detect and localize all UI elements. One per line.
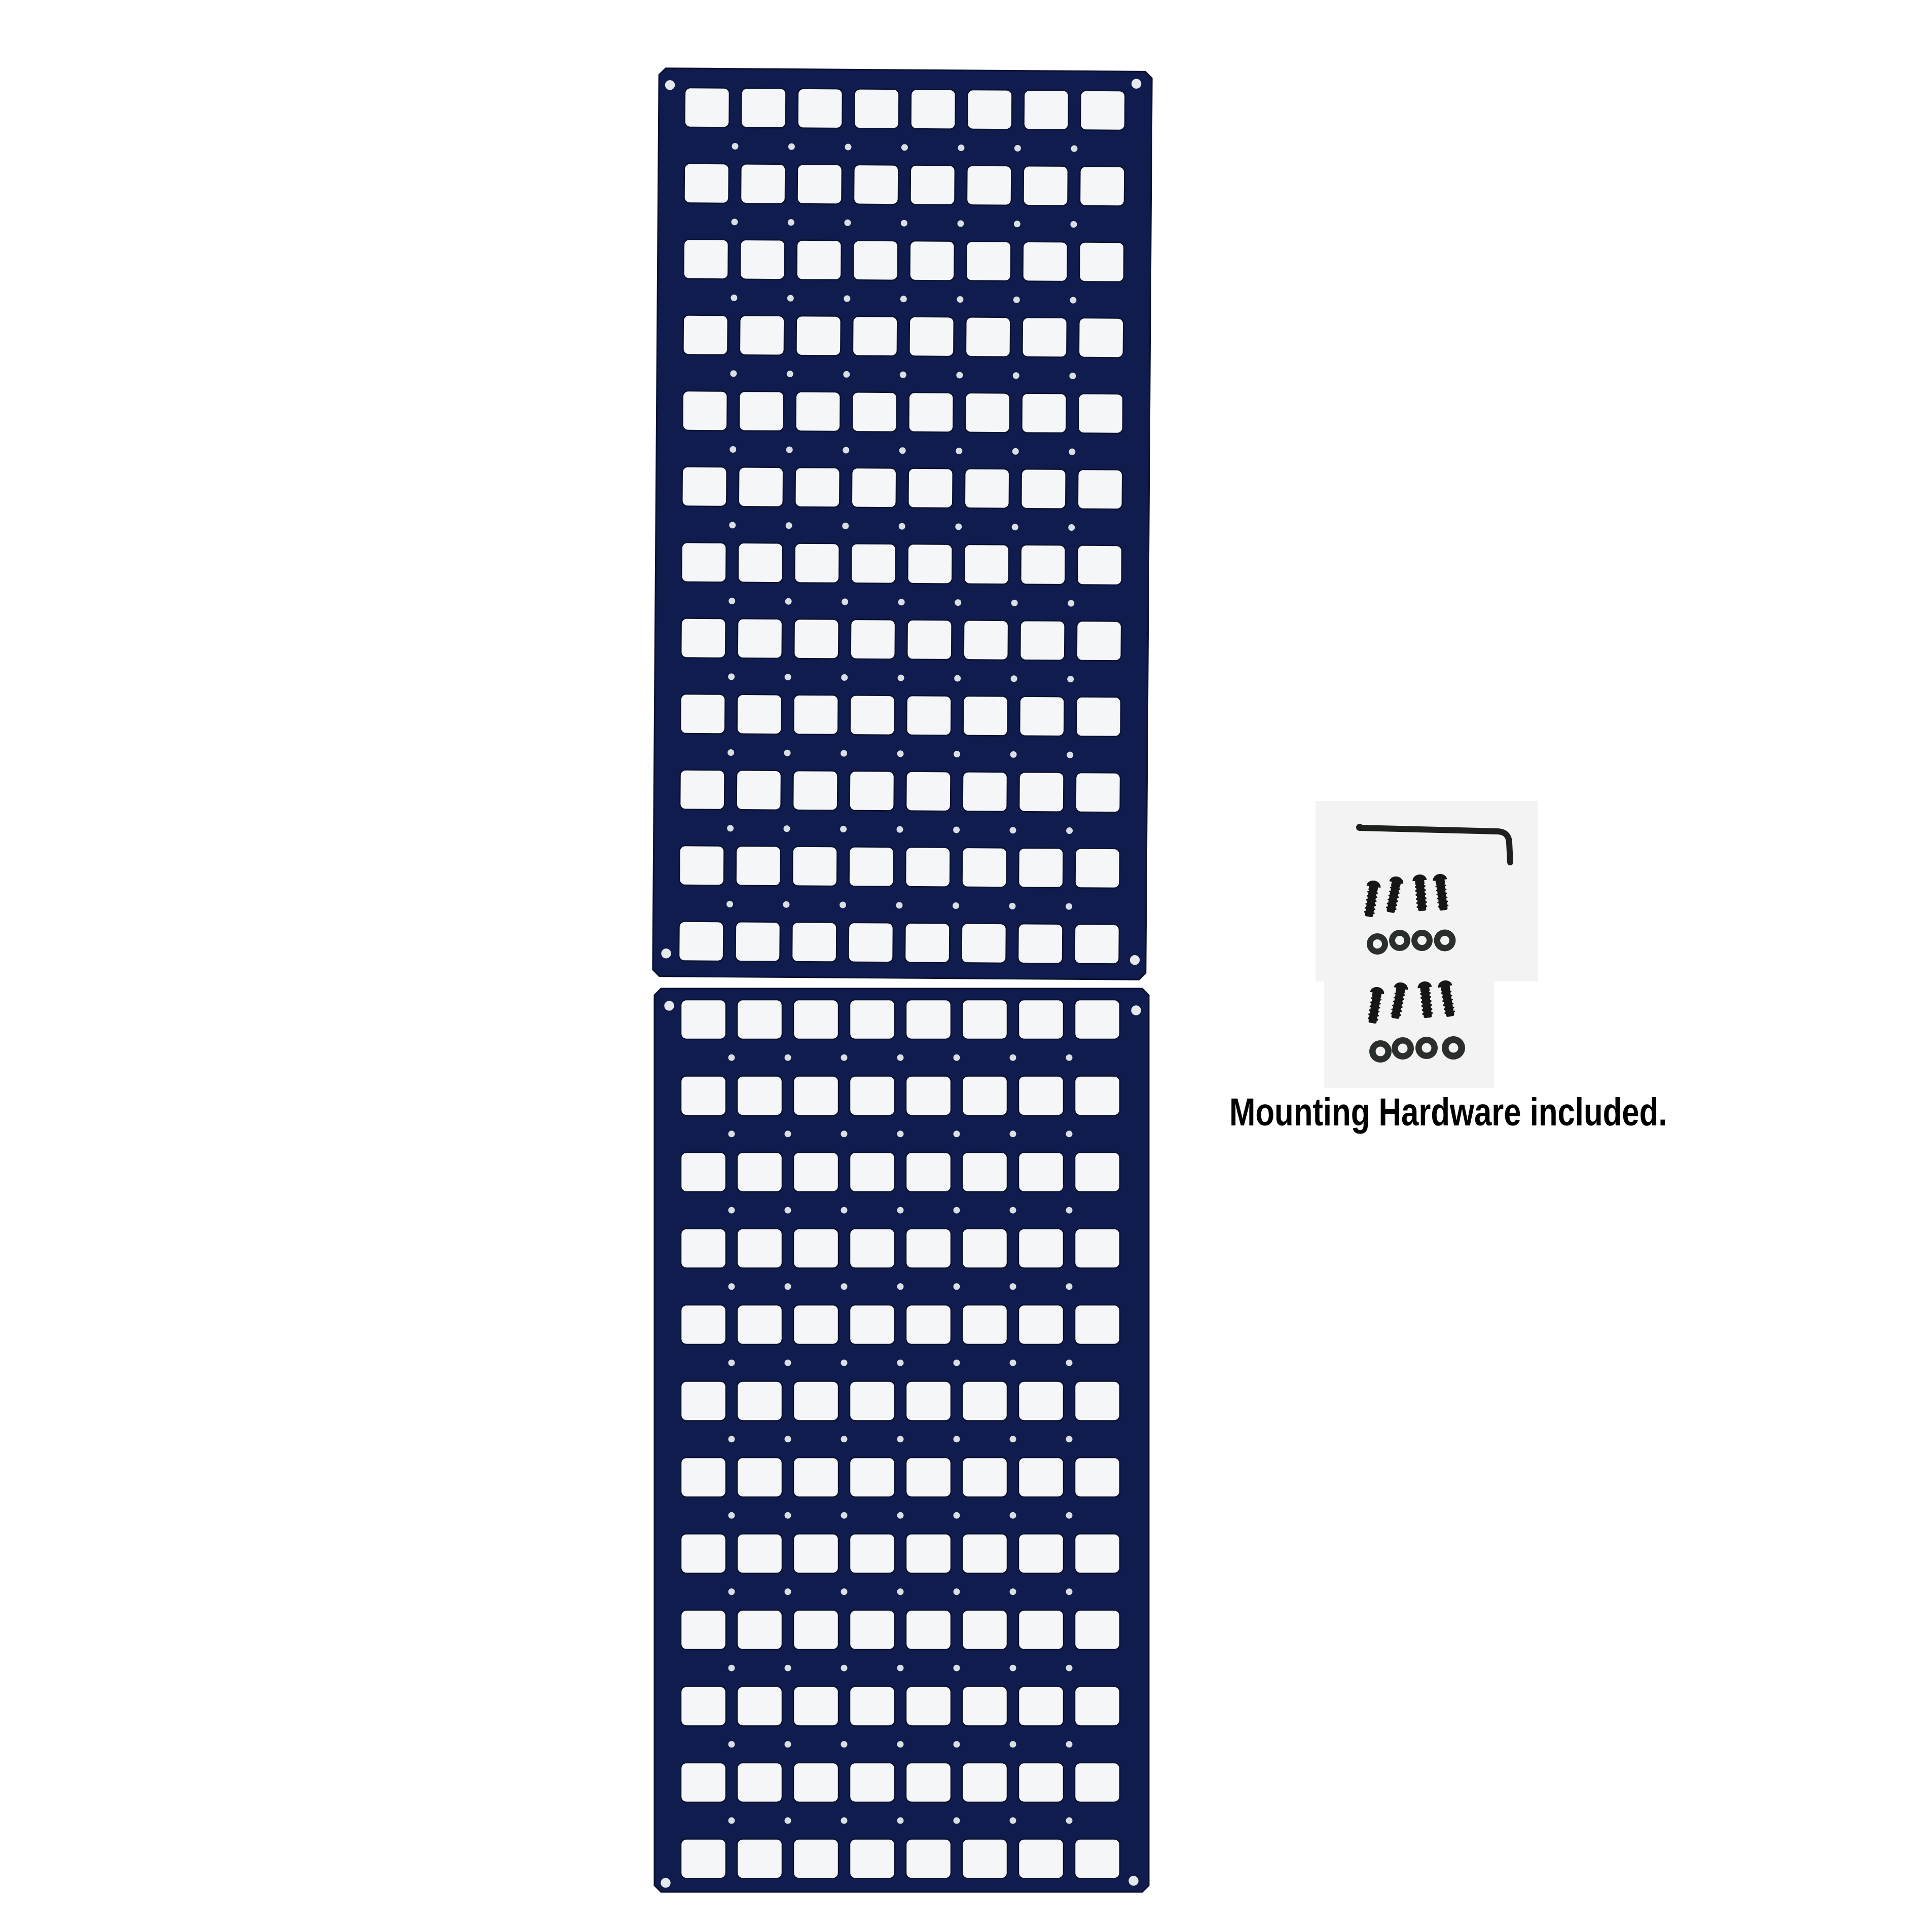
svg-text:Mounting Hardware included.: Mounting Hardware included.	[1229, 1090, 1667, 1134]
